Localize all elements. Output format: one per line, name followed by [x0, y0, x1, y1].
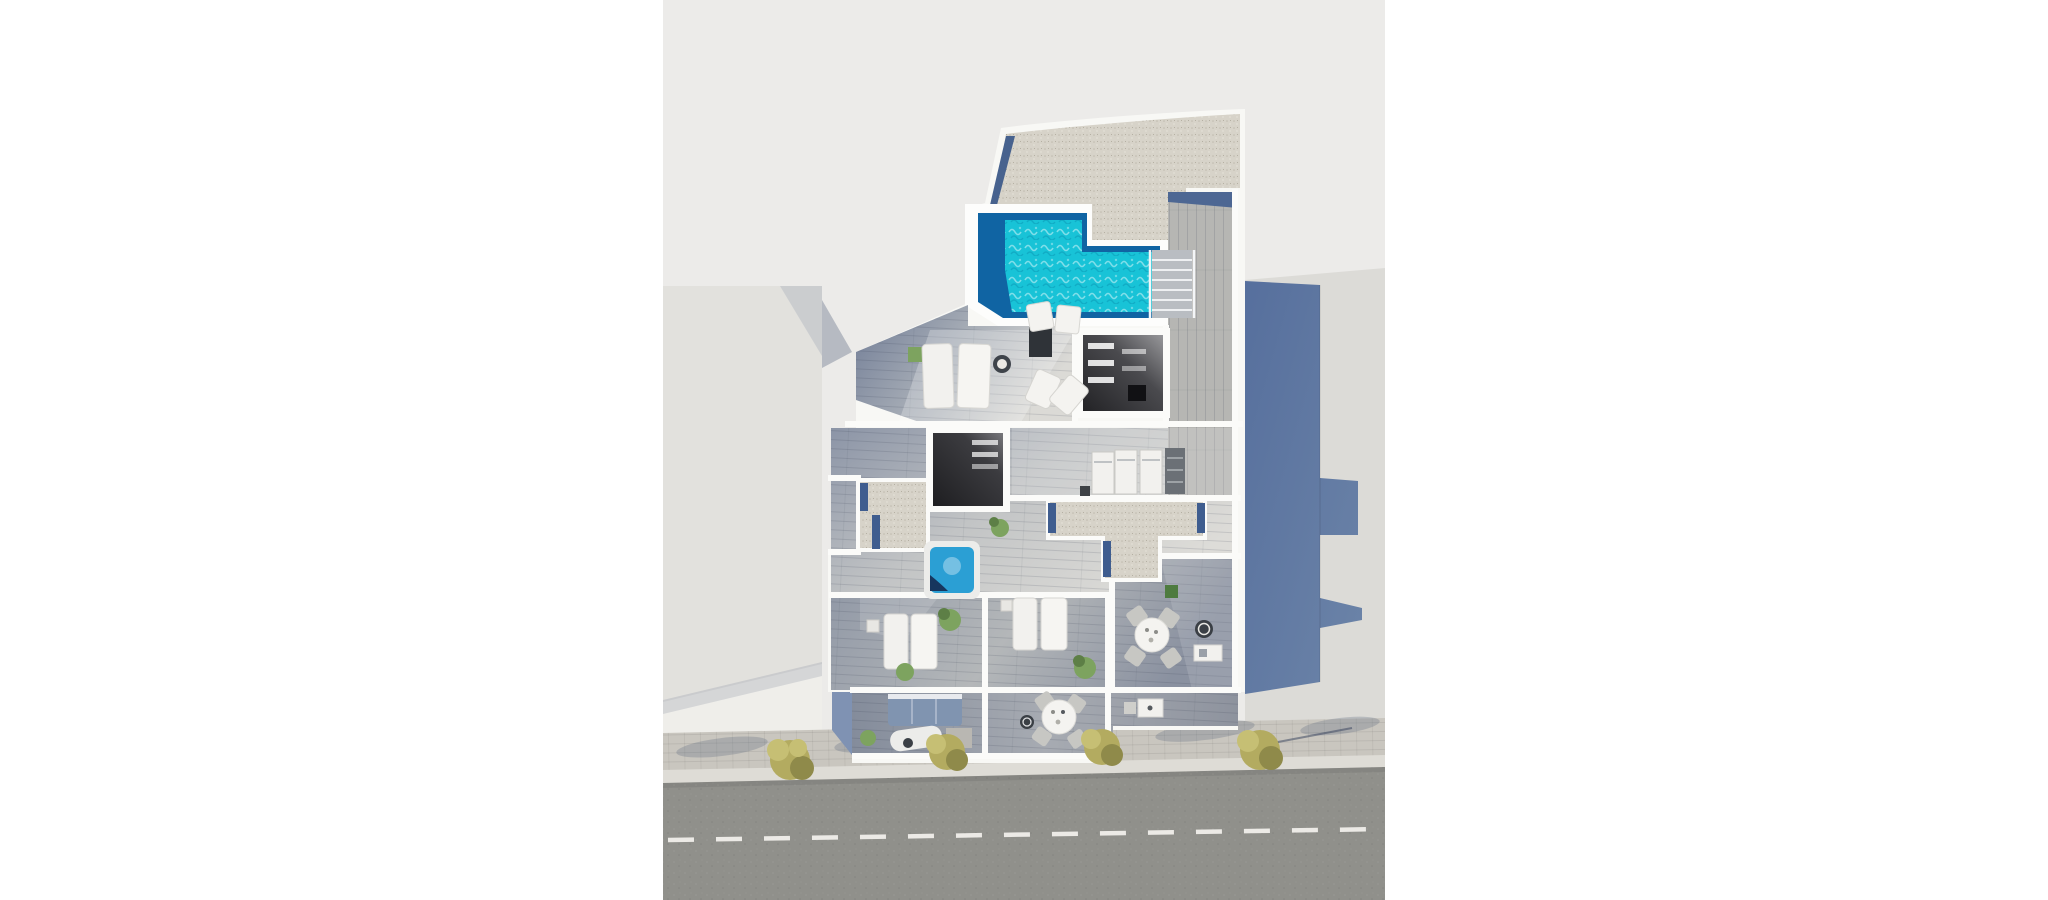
hot-tub: [924, 541, 980, 599]
balcony-table-round: [1042, 700, 1076, 734]
neighbor-building-right: [1245, 268, 1385, 740]
skylight-lower: [926, 426, 1010, 512]
dining-table-round: [1135, 618, 1169, 652]
small-chair: [1124, 702, 1136, 714]
plant-box-small: [1165, 585, 1178, 598]
skylight-dark-object: [1128, 385, 1146, 401]
render-canvas: [0, 0, 2048, 900]
pool-stairs: [1150, 250, 1194, 318]
gravel-pad-left: [858, 480, 928, 550]
architectural-render: [0, 0, 2048, 900]
plant-box: [908, 347, 923, 362]
side-table-dark-2: [1195, 620, 1213, 638]
sofa: [888, 696, 962, 726]
ice-bucket: [1020, 715, 1034, 729]
appliance-dark-unit: [1165, 448, 1185, 494]
skylight-upper: [1076, 328, 1170, 418]
appliance-row: [1080, 448, 1185, 496]
desk: [1194, 645, 1222, 661]
